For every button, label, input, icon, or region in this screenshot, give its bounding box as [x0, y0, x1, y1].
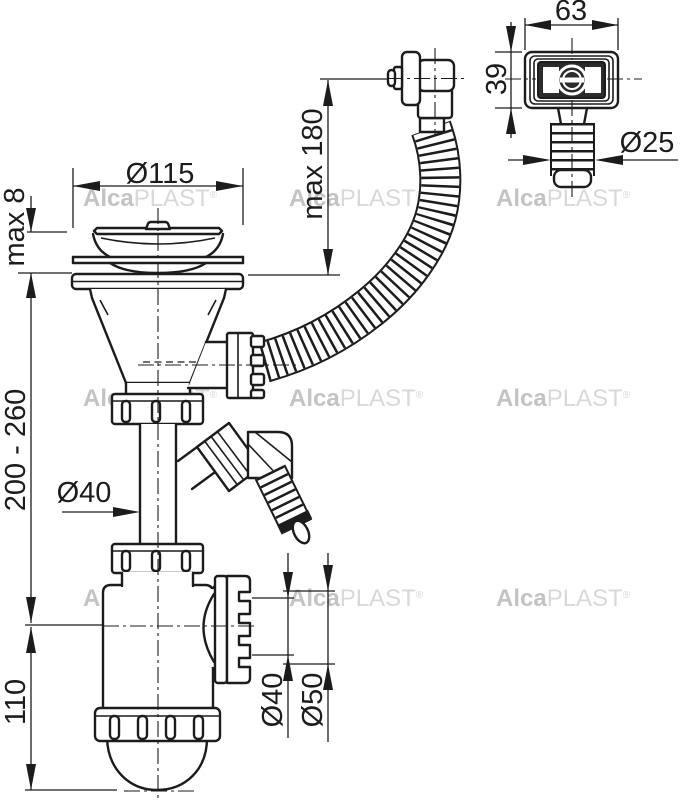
dim-label-dia115: Ø115 — [126, 158, 195, 190]
watermark-text: AlcaPLAST® — [496, 585, 631, 612]
tail-pipe — [112, 394, 203, 545]
dim-label-pipe-dia40: Ø40 — [57, 477, 112, 509]
watermark-text: AlcaPLAST® — [289, 385, 424, 412]
siphon-technical-drawing: AlcaPLAST®AlcaPLAST®AlcaPLAST®AlcaPLAST®… — [0, 0, 680, 800]
screw-slot — [560, 78, 584, 83]
dishwasher-elbow — [178, 423, 313, 546]
dim-label-outlet-dia50: Ø50 — [297, 673, 329, 728]
dim-label-range: 200 - 260 — [0, 389, 32, 512]
dim-label-outlet-dia40: Ø40 — [257, 673, 289, 728]
trap-body — [95, 544, 250, 790]
trap-dome — [107, 738, 207, 790]
watermark-text: AlcaPLAST® — [289, 585, 424, 612]
overflow-fitting-side-view — [387, 48, 464, 136]
trap-outlet — [199, 576, 250, 683]
watermark-text: AlcaPLAST® — [496, 385, 631, 412]
dim-label-39: 39 — [481, 63, 513, 95]
dimension-range-200-260: 200 - 260 — [0, 273, 103, 625]
dimension-max8: max 8 — [0, 188, 72, 298]
dim-label-max180: max 180 — [297, 108, 329, 219]
overflow-detail-view — [505, 38, 642, 198]
technical-drawing-page: AlcaPLAST®AlcaPLAST®AlcaPLAST®AlcaPLAST®… — [0, 0, 680, 800]
dimension-detail-39: 39 — [481, 22, 522, 138]
dim-label-max8: max 8 — [0, 188, 31, 267]
dim-label-63: 63 — [555, 0, 587, 27]
dim-label-110: 110 — [0, 679, 32, 725]
watermark-text: AlcaPLAST® — [496, 185, 631, 212]
dim-label-dia25: Ø25 — [620, 127, 675, 159]
dimension-outlet-dia40: Ø40 — [252, 553, 294, 738]
dimension-max180: max 180 — [248, 79, 387, 275]
dimension-pipe-dia40: Ø40 — [57, 477, 140, 517]
